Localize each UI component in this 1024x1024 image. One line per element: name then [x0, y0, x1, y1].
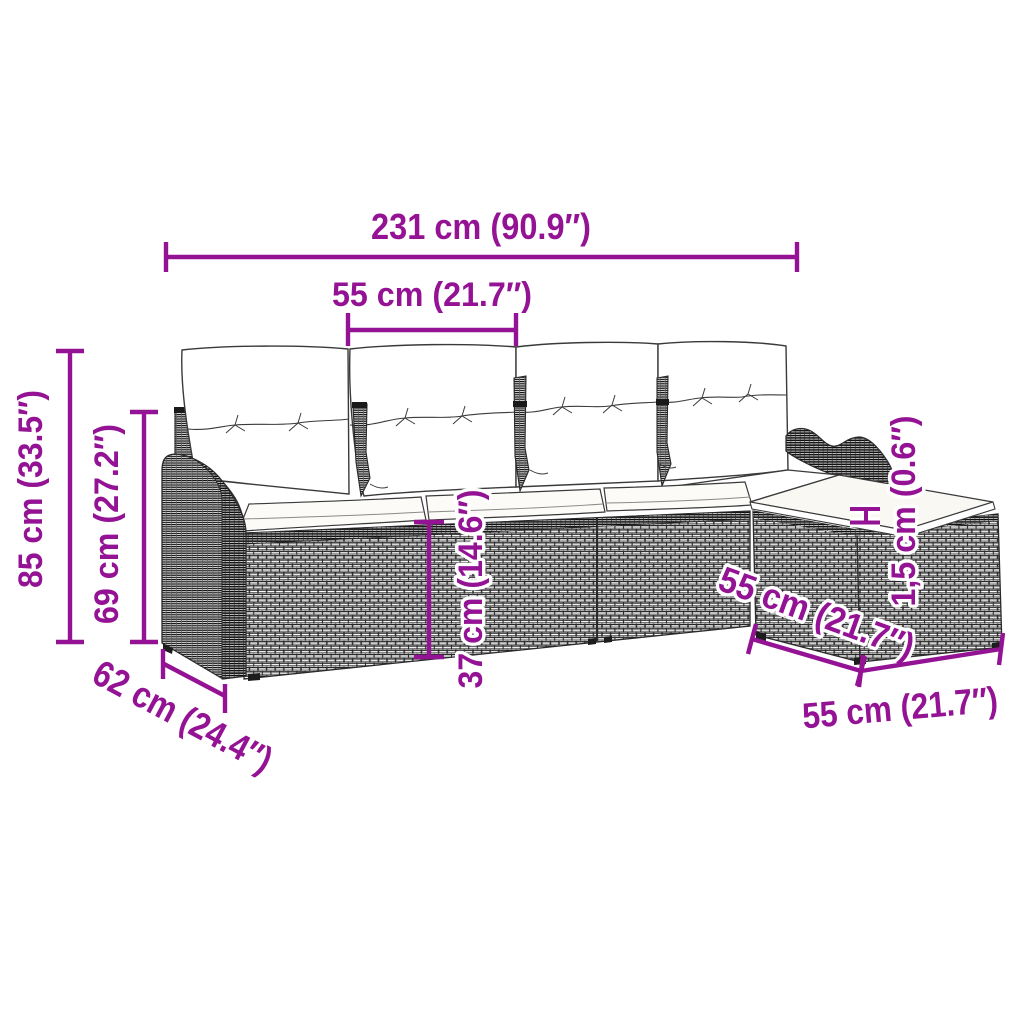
svg-text:69 cm (27.2″): 69 cm (27.2″)	[88, 424, 126, 624]
svg-text:37 cm (14.6″): 37 cm (14.6″)	[452, 490, 490, 689]
svg-text:231 cm (90.9″): 231 cm (90.9″)	[371, 206, 591, 247]
svg-text:55 cm (21.7″): 55 cm (21.7″)	[332, 276, 532, 314]
svg-text:1,5 cm (0.6″): 1,5 cm (0.6″)	[885, 416, 923, 607]
svg-text:85 cm (33.5″): 85 cm (33.5″)	[12, 390, 50, 588]
